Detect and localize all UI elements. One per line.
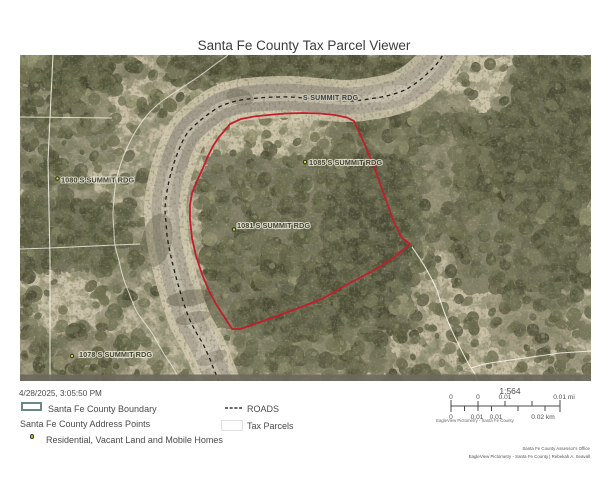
svg-text:0: 0 xyxy=(476,394,480,401)
svg-text:0.01: 0.01 xyxy=(499,394,512,401)
svg-text:1085 S SUMMIT RDG: 1085 S SUMMIT RDG xyxy=(309,158,382,167)
svg-text:S SUMMIT RDG: S SUMMIT RDG xyxy=(303,95,359,102)
svg-text:1081 S SUMMIT RDG: 1081 S SUMMIT RDG xyxy=(237,221,310,230)
svg-text:0.02 km: 0.02 km xyxy=(531,414,555,421)
svg-text:0.01 mi: 0.01 mi xyxy=(553,394,575,401)
svg-text:1080 S SUMMIT RDG: 1080 S SUMMIT RDG xyxy=(61,176,134,185)
svg-text:1078 S SUMMIT RDG: 1078 S SUMMIT RDG xyxy=(79,350,152,359)
svg-text:0: 0 xyxy=(449,394,453,401)
